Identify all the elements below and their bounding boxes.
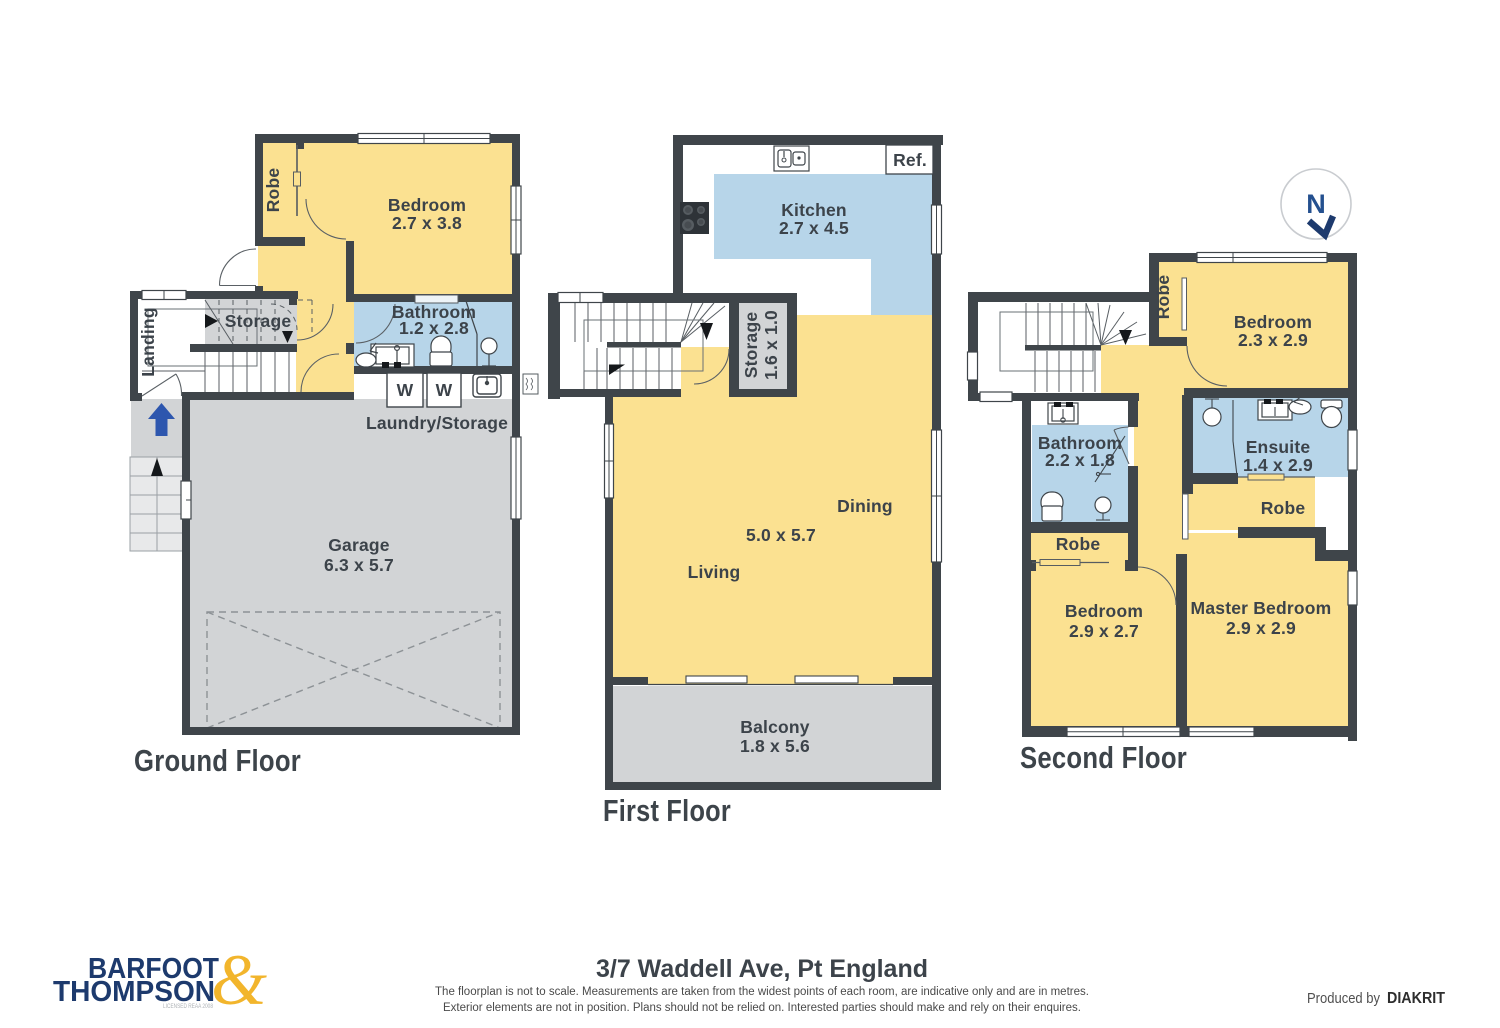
svg-text:Second Floor: Second Floor xyxy=(1020,740,1187,775)
svg-text:2.9 x 2.7: 2.9 x 2.7 xyxy=(1069,621,1139,641)
svg-text:W: W xyxy=(397,380,414,400)
svg-text:Living: Living xyxy=(688,562,741,582)
svg-text:Storage: Storage xyxy=(741,312,761,379)
svg-text:The floorplan is not to scale.: The floorplan is not to scale. Measureme… xyxy=(435,986,1089,998)
svg-text:Kitchen: Kitchen xyxy=(781,200,847,220)
svg-text:Laundry/Storage: Laundry/Storage xyxy=(366,413,508,433)
svg-text:1.8 x 5.6: 1.8 x 5.6 xyxy=(740,736,810,756)
svg-text:Ref.: Ref. xyxy=(893,150,927,170)
svg-text:Bedroom: Bedroom xyxy=(388,195,466,215)
svg-text:2.2 x 1.8: 2.2 x 1.8 xyxy=(1045,450,1115,470)
svg-text:3/7 Waddell Ave, Pt England: 3/7 Waddell Ave, Pt England xyxy=(596,955,928,983)
svg-text:1.4 x 2.9: 1.4 x 2.9 xyxy=(1243,455,1313,475)
svg-text:&: & xyxy=(211,940,267,1020)
svg-text:6.3 x 5.7: 6.3 x 5.7 xyxy=(324,555,394,575)
svg-text:Produced by: Produced by xyxy=(1307,990,1380,1007)
svg-text:Robe: Robe xyxy=(1056,534,1101,554)
svg-text:Master Bedroom: Master Bedroom xyxy=(1191,598,1332,618)
svg-text:2.9 x 2.9: 2.9 x 2.9 xyxy=(1226,618,1296,638)
svg-text:Bedroom: Bedroom xyxy=(1234,312,1312,332)
svg-text:Bedroom: Bedroom xyxy=(1065,601,1143,621)
svg-text:2.7 x 3.8: 2.7 x 3.8 xyxy=(392,213,462,233)
svg-text:5.0 x 5.7: 5.0 x 5.7 xyxy=(746,525,816,545)
svg-text:Robe: Robe xyxy=(263,168,283,213)
svg-text:Garage: Garage xyxy=(328,535,390,555)
svg-text:Storage: Storage xyxy=(225,311,292,331)
svg-text:Ensuite: Ensuite xyxy=(1246,437,1311,457)
svg-text:Balcony: Balcony xyxy=(740,717,810,737)
svg-text:2.3 x 2.9: 2.3 x 2.9 xyxy=(1238,330,1308,350)
svg-text:Landing: Landing xyxy=(138,307,158,376)
svg-text:Dining: Dining xyxy=(837,496,893,516)
svg-text:LICENSED REAA 2008: LICENSED REAA 2008 xyxy=(163,1003,213,1010)
svg-text:2.7 x 4.5: 2.7 x 4.5 xyxy=(779,218,849,238)
svg-text:First Floor: First Floor xyxy=(603,793,731,828)
svg-text:Ground Floor: Ground Floor xyxy=(134,743,301,778)
svg-text:1.2 x 2.8: 1.2 x 2.8 xyxy=(399,318,469,338)
svg-text:W: W xyxy=(436,380,453,400)
svg-text:1.6 x 1.0: 1.6 x 1.0 xyxy=(761,310,781,380)
svg-text:Robe: Robe xyxy=(1153,275,1173,320)
svg-text:Robe: Robe xyxy=(1261,498,1306,518)
svg-text:DIAKRIT: DIAKRIT xyxy=(1387,990,1445,1007)
svg-text:Exterior elements are not in p: Exterior elements are not in position. P… xyxy=(443,1002,1081,1014)
svg-text:N: N xyxy=(1306,189,1326,219)
